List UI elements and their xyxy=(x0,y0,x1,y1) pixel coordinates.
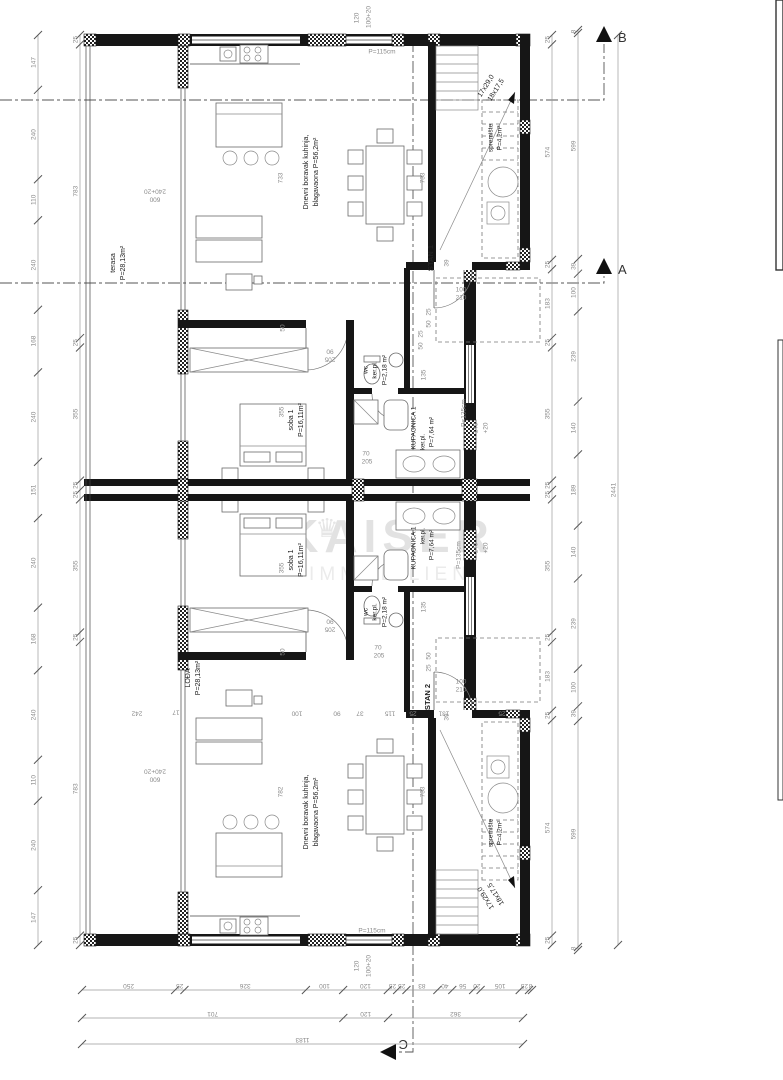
text-label: 599 xyxy=(571,828,578,839)
text-label: LOĐA xyxy=(185,668,192,687)
text-label: 120 xyxy=(354,960,361,971)
text-label: 83 xyxy=(418,982,426,989)
text-label: 25 xyxy=(545,936,552,944)
text-label: 574 xyxy=(545,146,552,157)
text-label: 140 xyxy=(571,422,578,433)
text-label: 25 xyxy=(398,982,406,989)
text-label: 355 xyxy=(545,408,552,419)
text-label: 326 xyxy=(239,982,250,989)
text-label: 25 xyxy=(73,481,80,489)
sofa xyxy=(196,216,262,238)
text-label: 782 xyxy=(278,786,285,797)
room-labels: terasaP=28,13m²LOĐAP=28,13m²Dnevni borav… xyxy=(110,74,506,911)
text-label: 120 xyxy=(360,982,371,989)
text-label: 8 xyxy=(528,982,532,989)
text-label: 168 xyxy=(31,335,38,346)
text-label: 733 xyxy=(420,786,427,797)
text-label: 240 xyxy=(31,411,38,422)
text-label: P=115cm xyxy=(368,49,395,56)
text-label: Dnevni boravak kuhinja, xyxy=(303,775,310,850)
text-label: 25 xyxy=(409,709,417,716)
party-wall xyxy=(84,479,530,501)
text-label: spremište xyxy=(488,819,495,848)
text-label: P=16,11m² xyxy=(298,542,305,577)
text-label: 240 xyxy=(31,259,38,270)
text-label: P=135cm xyxy=(456,541,463,569)
washbasin xyxy=(389,353,403,367)
entry-canopy xyxy=(436,278,540,342)
text-label: 189 xyxy=(571,484,578,495)
text-label: 210 xyxy=(456,687,467,694)
text-label: 250 xyxy=(123,982,134,989)
apartment-unit xyxy=(84,34,540,480)
text-label: 2441 xyxy=(611,482,618,497)
text-label: 110 xyxy=(31,775,38,786)
stove xyxy=(240,45,268,63)
text-label: P=135cm xyxy=(461,399,468,427)
text-label: P=2,18 m² xyxy=(382,596,389,627)
dim-chain-right-1: 2557425183253552525355251832557425 xyxy=(545,31,556,949)
text-label: 151 xyxy=(31,484,38,495)
text-label: 25 xyxy=(545,711,552,719)
text-label: 168 xyxy=(31,633,38,644)
sheet-edge xyxy=(776,0,783,800)
section-b-label: B xyxy=(618,30,627,45)
dim-chain-right-total: 2441 xyxy=(611,31,622,949)
floor-plan-drawing: ♛KAISERIMMOBILIEN xyxy=(0,0,783,1080)
storage-under-stairs xyxy=(440,92,518,258)
text-label: 50 xyxy=(280,324,287,332)
text-label: blagavaona P=56,2m² xyxy=(313,137,320,206)
text-label: 135 xyxy=(421,369,428,380)
text-label: terasa xyxy=(110,253,117,273)
text-label: 39 xyxy=(571,710,578,718)
section-a-label: A xyxy=(618,262,627,277)
text-label: 25 xyxy=(545,633,552,641)
text-label: +20 xyxy=(483,422,490,433)
text-label: 17 xyxy=(172,708,180,715)
text-label: 240 xyxy=(31,709,38,720)
text-label: P=28,13m² xyxy=(120,245,127,280)
text-label: 25 xyxy=(520,982,528,989)
text-label: 39 xyxy=(444,259,451,267)
text-label: 100 xyxy=(456,287,467,294)
text-label: 120 xyxy=(360,1010,371,1017)
text-label: wc xyxy=(363,607,370,617)
text-label: P=7,64 m² xyxy=(429,529,436,560)
text-label: 90 xyxy=(326,617,334,624)
boiler xyxy=(488,167,518,197)
text-label: 100 xyxy=(571,287,578,298)
text-label: 100 xyxy=(319,982,330,989)
text-label: 362 xyxy=(450,1010,461,1017)
text-label: 115 xyxy=(384,709,395,716)
section-c-label: C xyxy=(399,1037,408,1052)
text-label: 25 xyxy=(73,936,80,944)
text-label: 56 xyxy=(459,982,467,989)
text-label: 105 xyxy=(494,982,505,989)
text-label: P=4,2m² xyxy=(497,820,504,846)
text-label: wc xyxy=(363,365,370,375)
text-label: 25 xyxy=(73,36,80,44)
island xyxy=(216,103,282,147)
text-label: 240+20 xyxy=(144,187,166,194)
section-a-arrow xyxy=(596,258,612,274)
text-label: 147 xyxy=(31,57,38,68)
text-label: 50 xyxy=(280,648,287,656)
text-label: 25 xyxy=(73,491,80,499)
text-label: ker.pl. xyxy=(372,603,379,621)
text-label: 25 xyxy=(426,664,433,672)
text-label: 100+20 xyxy=(366,955,373,977)
text-label: STAN 1 xyxy=(426,245,435,271)
text-label: 110 xyxy=(31,194,38,205)
text-label: 100+20 xyxy=(366,6,373,28)
text-label: 210 xyxy=(456,295,467,302)
toilet-tank xyxy=(364,356,380,362)
text-label: 50 xyxy=(426,320,433,328)
text-label: 783 xyxy=(73,783,80,794)
text-label: 205 xyxy=(374,653,385,660)
text-label: 50 xyxy=(426,652,433,660)
dim-chain-right-2: 859939100239140189140239100395998 xyxy=(571,26,582,954)
sink xyxy=(220,47,236,61)
text-label: KUPAONICA 1 xyxy=(411,526,418,569)
text-label: 131 xyxy=(438,709,449,716)
text-label: 600 xyxy=(149,195,160,202)
text-label: P=115cm xyxy=(358,928,385,935)
text-label: 25 xyxy=(545,261,552,269)
text-label: 355 xyxy=(545,560,552,571)
text-label: 240 xyxy=(31,129,38,140)
text-label: 355 xyxy=(73,408,80,419)
text-label: 240 xyxy=(31,557,38,568)
floor-plan-svg: ♛KAISERIMMOBILIEN xyxy=(0,0,783,1080)
vanity xyxy=(396,450,460,478)
dim-chain-bottom-2: 701120362 xyxy=(78,1010,527,1022)
text-label: soba 1 xyxy=(288,549,295,570)
text-label: KUPAONICA 1 xyxy=(411,406,418,449)
text-label: 240+20 xyxy=(144,767,166,774)
text-label: 100 xyxy=(291,709,302,716)
text-label: 140 xyxy=(473,542,480,553)
text-label: 140 xyxy=(571,546,578,557)
terrace-railing xyxy=(86,46,90,934)
text-label: 25 xyxy=(545,339,552,347)
text-label: 70 xyxy=(362,451,370,458)
dim-chain-left-outer: 147240110240168240151240168240110240147 xyxy=(31,31,42,949)
text-label: 120 xyxy=(354,12,361,23)
text-label: 205 xyxy=(324,625,335,632)
text-label: 8 xyxy=(571,29,578,33)
text-label: 25 xyxy=(176,982,184,989)
text-label: P=7,64 m² xyxy=(429,416,436,447)
kitchen xyxy=(190,45,300,165)
text-label: ker.pl. xyxy=(372,361,379,379)
text-label: 25 xyxy=(73,633,80,641)
tv-bench xyxy=(226,274,252,290)
text-label: 70 xyxy=(374,645,382,652)
text-label: 25 xyxy=(73,339,80,347)
text-label: 733 xyxy=(278,172,285,183)
dim-chain-bottom-3: 1183 xyxy=(78,1036,527,1048)
text-label: 140 xyxy=(473,422,480,433)
text-label: 37 xyxy=(356,709,364,716)
text-label: 355 xyxy=(279,562,286,573)
text-label: 8 xyxy=(571,946,578,950)
text-label: 1183 xyxy=(295,1036,309,1043)
text-label: 25 xyxy=(498,709,506,716)
washer xyxy=(487,202,509,224)
text-label: 100 xyxy=(571,682,578,693)
text-label: P=4,2m² xyxy=(497,125,504,151)
text-label: 242 xyxy=(131,709,142,716)
dining-table xyxy=(366,146,404,224)
text-label: 239 xyxy=(571,618,578,629)
dim-chain-left-inner: 257832535525253552578325 xyxy=(73,31,84,949)
text-label: 25 xyxy=(545,481,552,489)
text-label: 183 xyxy=(545,298,552,309)
text-label: 600 xyxy=(149,775,160,782)
text-label: P=2,18 m² xyxy=(382,354,389,385)
text-label: 599 xyxy=(571,140,578,151)
text-label: ker.pl. xyxy=(421,528,427,544)
text-label: 50 xyxy=(418,342,425,350)
text-label: 147 xyxy=(31,912,38,923)
text-label: 135 xyxy=(421,601,428,612)
text-label: soba 1 xyxy=(288,409,295,430)
text-label: 40 xyxy=(441,982,449,989)
text-label: STAN 2 xyxy=(423,684,432,710)
text-label: 205 xyxy=(362,459,373,466)
text-label: 355 xyxy=(279,406,286,417)
text-label: 205 xyxy=(324,355,335,362)
text-label: 183 xyxy=(545,671,552,682)
bathroom xyxy=(354,400,460,478)
text-label: 25 xyxy=(418,330,425,338)
text-label: 90 xyxy=(333,709,341,716)
text-label: ker.pl. xyxy=(421,434,427,450)
text-label: 574 xyxy=(545,822,552,833)
text-label: 25 xyxy=(545,36,552,44)
text-label: blagavaona P=56,2m² xyxy=(313,777,320,846)
text-label: 100 xyxy=(456,679,467,686)
text-label: 25 xyxy=(426,308,433,316)
text-label: 239 xyxy=(571,351,578,362)
text-label: P=16,11m² xyxy=(298,402,305,437)
tub xyxy=(384,400,408,430)
text-label: Dnevni boravak kuhinja, xyxy=(303,135,310,210)
text-label: 20 xyxy=(473,982,481,989)
text-label: 25 xyxy=(545,491,552,499)
text-label: 733 xyxy=(420,172,427,183)
section-b-arrow xyxy=(596,26,612,42)
text-label: P=28,13m² xyxy=(195,660,202,695)
text-label: 39 xyxy=(571,262,578,270)
text-label: 783 xyxy=(73,185,80,196)
dim-chain-bottom-1: 25025326100120252583405620105258 xyxy=(78,982,536,994)
text-label: spremište xyxy=(488,124,495,153)
text-label: 240 xyxy=(31,840,38,851)
text-label: 701 xyxy=(207,1010,218,1017)
text-label: 90 xyxy=(326,347,334,354)
section-c-arrow xyxy=(380,1044,396,1060)
text-label: +20 xyxy=(483,542,490,553)
text-label: 25 xyxy=(388,982,396,989)
text-label: 355 xyxy=(73,560,80,571)
